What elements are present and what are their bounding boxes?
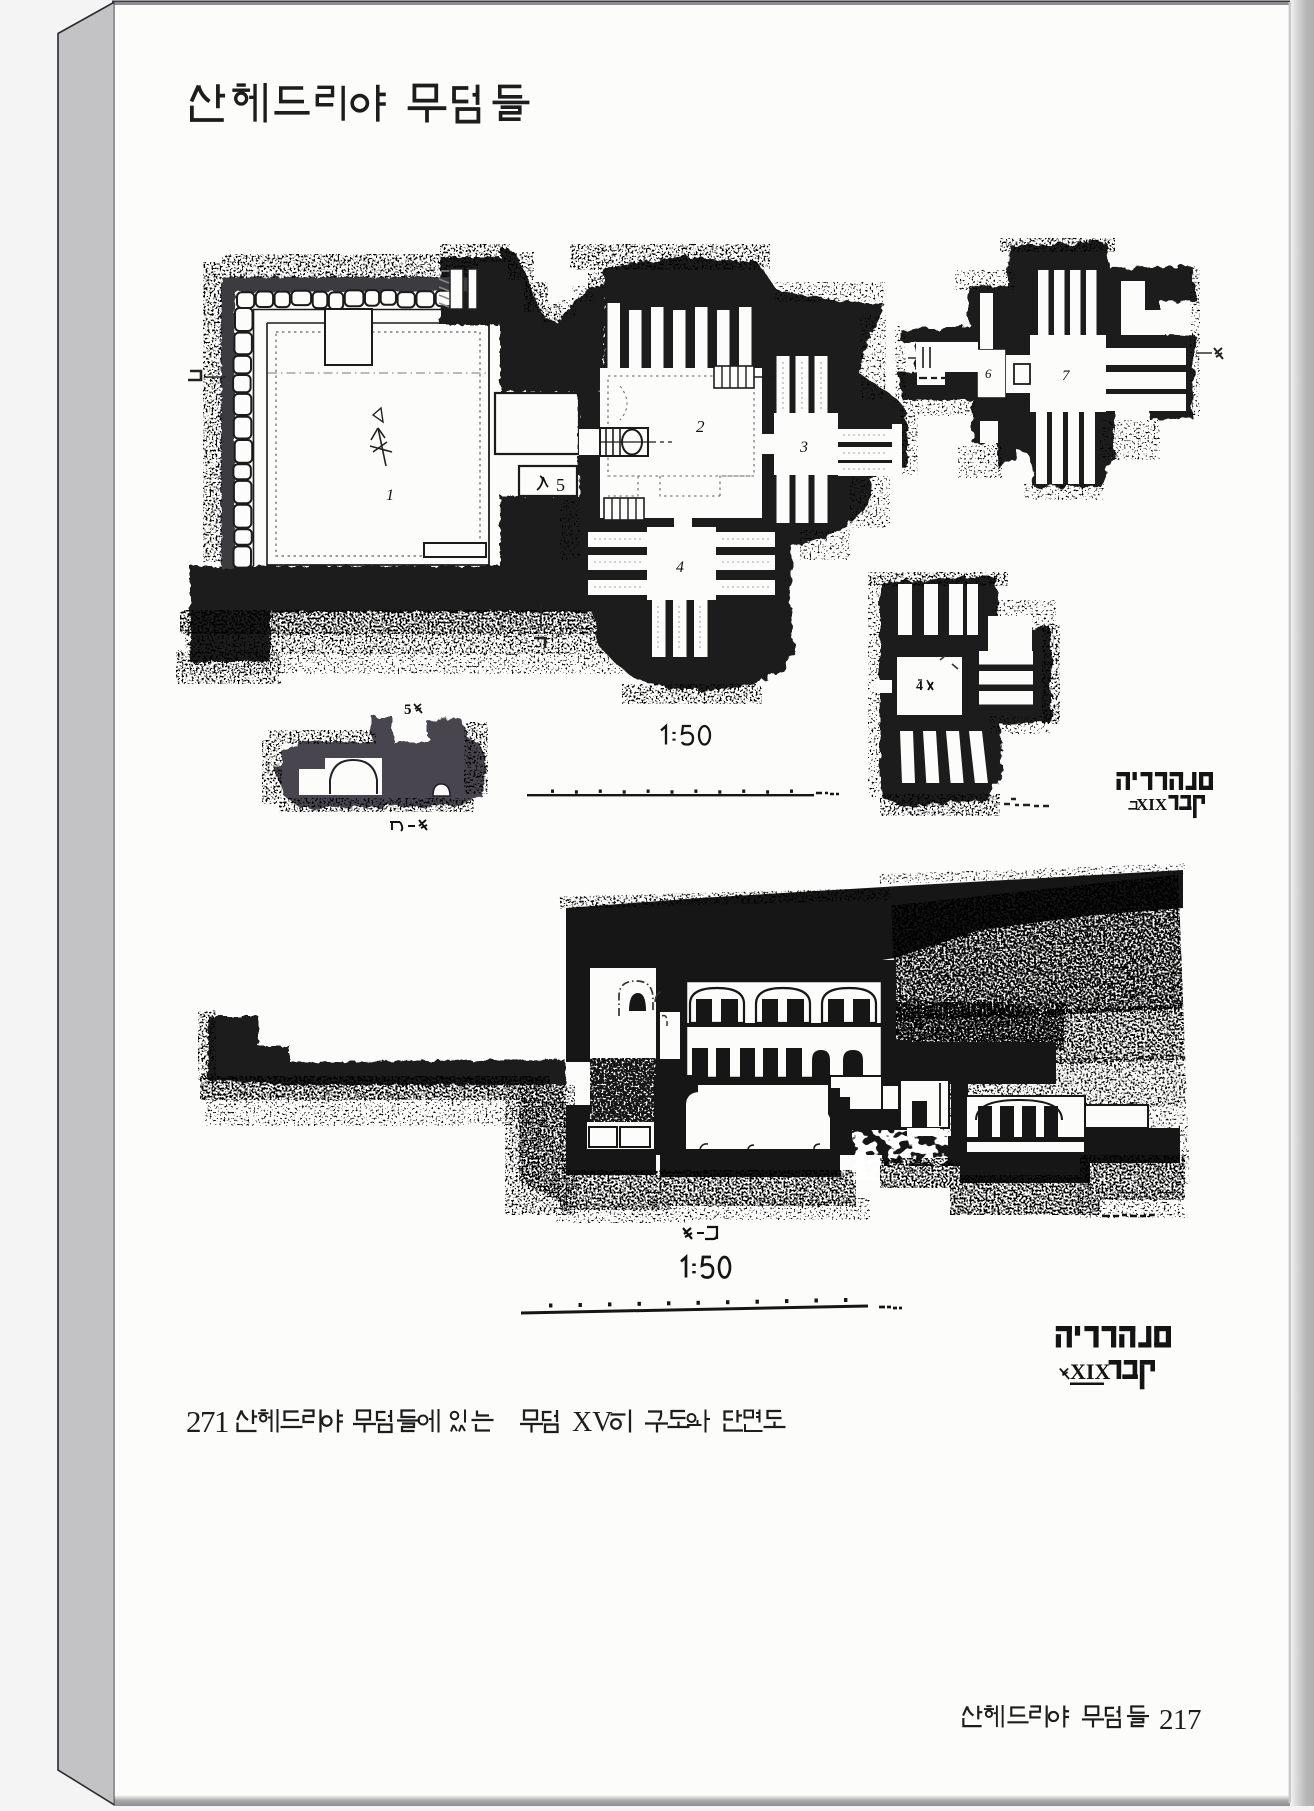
svg-text:4: 4 bbox=[676, 559, 684, 576]
svg-text:271: 271 bbox=[186, 1404, 228, 1439]
svg-text:2: 2 bbox=[696, 417, 705, 436]
svg-text:217: 217 bbox=[1159, 1704, 1201, 1736]
svg-text:XIX: XIX bbox=[1070, 1359, 1110, 1384]
svg-text:1: 1 bbox=[386, 487, 394, 504]
svg-text:5: 5 bbox=[556, 475, 565, 495]
svg-text:3: 3 bbox=[799, 439, 808, 456]
svg-text:6: 6 bbox=[985, 366, 992, 381]
svg-text:XIX: XIX bbox=[1136, 795, 1168, 814]
svg-text:5: 5 bbox=[404, 702, 412, 718]
svg-text:XV: XV bbox=[572, 1407, 612, 1438]
svg-text:4: 4 bbox=[916, 679, 923, 694]
